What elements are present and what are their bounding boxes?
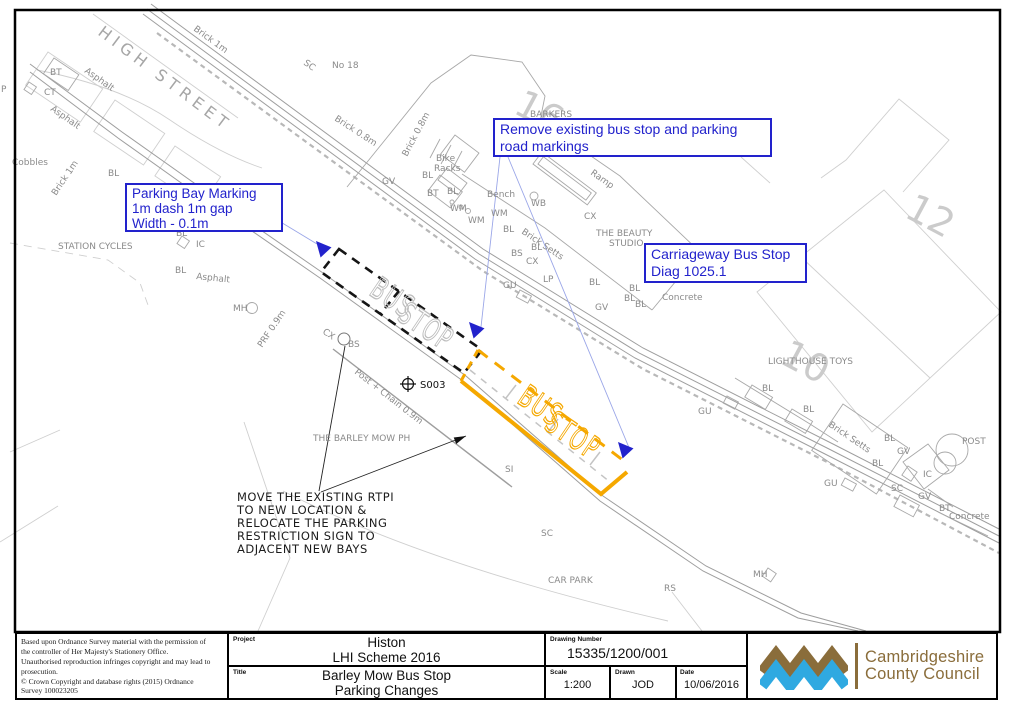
map-label: Bike [436, 154, 456, 164]
map-label: Concrete [949, 512, 990, 522]
map-label: No 18 [332, 61, 359, 71]
map-label: BL [589, 278, 600, 288]
map-label: Racks [434, 164, 461, 174]
logo-line2: County Council [865, 665, 980, 683]
map-label: MH [753, 570, 768, 580]
map-label: GU [824, 479, 838, 489]
map-label: S003 [420, 380, 445, 391]
note-leader-lines [319, 346, 466, 492]
map-label: RS [664, 584, 676, 594]
map-label: Brick Setts [826, 420, 872, 456]
road-kerb-lines [30, 4, 999, 631]
drawing-border [15, 10, 1000, 632]
map-label: SC [301, 58, 317, 73]
map-label: IC [923, 470, 932, 480]
ccc-logo: CambridgeshireCounty Council [748, 634, 996, 698]
callout-leader-lines [279, 157, 630, 450]
drawing-number-value: 15335/1200/001 [567, 645, 668, 661]
logo-line1: Cambridgeshire [865, 648, 984, 666]
date-value: 10/06/2016 [677, 679, 746, 691]
map-label: SI [505, 465, 513, 475]
map-label: BL [803, 405, 814, 415]
map-label: BL [422, 171, 433, 181]
map-label: LIGHTHOUSE TOYS [768, 357, 853, 367]
title-value: Barley Mow Bus Stop Parking Changes [229, 669, 544, 698]
map-label: WM [491, 209, 508, 219]
map-label: Asphalt [82, 66, 116, 94]
map-label: GV [382, 177, 396, 187]
faint-survey-lines [0, 14, 1001, 631]
map-label: BL [108, 169, 119, 179]
drawn-label: Drawn [615, 669, 635, 676]
map-label: GU [503, 281, 517, 291]
scale-value: 1:200 [546, 679, 609, 691]
map-label: IC [196, 240, 205, 250]
map-label: STATION CYCLES [58, 242, 133, 252]
map-label: SC [891, 484, 903, 494]
map-label: Brick 0.8m [401, 111, 433, 159]
map-label: LP [543, 275, 554, 285]
scale-label: Scale [550, 669, 567, 676]
project-value: Histon LHI Scheme 2016 [229, 636, 544, 665]
logo-text: CambridgeshireCounty Council [865, 649, 984, 684]
map-label: Post + Chain 0.9m [352, 367, 424, 426]
map-label: WM [468, 216, 485, 226]
map-label: BS [348, 340, 360, 350]
map-label: CX [526, 257, 538, 267]
map-label: BT [427, 189, 439, 199]
logo-zigzag-icon [760, 642, 848, 690]
map-label: CX [584, 212, 596, 222]
map-label: STUDIO [609, 239, 643, 249]
map-label: GV [918, 492, 932, 502]
drawn-value: JOD [611, 679, 675, 691]
map-label: BL [531, 243, 542, 253]
map-label: 12 [899, 185, 962, 247]
map-label: BS [511, 249, 523, 259]
map-label: Asphalt [48, 104, 82, 132]
map-label: Ramp [588, 168, 615, 191]
logo-divider [855, 643, 858, 689]
map-label: Brick 1m [191, 24, 229, 56]
map-label: CX [320, 327, 336, 342]
note-leader-arrowhead [454, 433, 468, 444]
map-label: Asphalt [196, 272, 231, 286]
title-block-divider [227, 665, 748, 667]
map-label: Brick 0.8m [332, 114, 378, 149]
date-label: Date [680, 669, 694, 676]
map-label: WM [450, 204, 467, 214]
map-label: Brick 1m [50, 159, 81, 198]
survey-station-s003 [400, 376, 416, 392]
map-label: P [1, 85, 7, 95]
callout-carriageway-bus-stop: Carriageway Bus Stop Diag 1025.1 [644, 243, 807, 283]
site-plan-svg: HIGH STREETBrick 1mSCNo 18Brick 0.8mBric… [0, 0, 1021, 717]
map-label: BL [447, 187, 458, 197]
map-label: CAR PARK [548, 576, 594, 586]
map-label: GV [595, 303, 609, 313]
map-label: CT [44, 88, 56, 98]
map-label: BL [635, 300, 646, 310]
map-label: BL [629, 284, 640, 294]
map-label: BT [50, 68, 62, 78]
map-label: BL [762, 384, 773, 394]
map-label: BL [624, 294, 635, 304]
map-label: Concrete [662, 293, 703, 303]
map-label: BL [175, 266, 186, 276]
map-label: MH [233, 304, 248, 314]
map-label: THE BEAUTY [595, 229, 653, 239]
map-label: Bench [487, 190, 515, 200]
copyright-notice: Based upon Ordnance Survey material with… [21, 637, 221, 696]
map-label: Cobbles [12, 158, 48, 168]
map-label: BL [872, 459, 883, 469]
map-label: BL [884, 434, 895, 444]
title-block: Based upon Ordnance Survey material with… [15, 632, 998, 700]
map-label: WB [531, 199, 546, 209]
map-label: SC [541, 529, 553, 539]
callout-remove-existing: Remove existing bus stop and parking roa… [493, 118, 772, 157]
rtpi-relocation-note: MOVE THE EXISTING RTPI TO NEW LOCATION &… [237, 491, 427, 556]
map-label: GV [897, 447, 911, 457]
map-label: THE BARLEY MOW PH [312, 434, 410, 444]
callout-parking-bay-marking: Parking Bay Marking 1m dash 1m gap Width… [125, 183, 283, 232]
drawing-number-label: Drawing Number [550, 636, 602, 643]
map-label: GU [698, 407, 712, 417]
map-label: POST [962, 437, 986, 447]
map-label: BL [503, 225, 514, 235]
map-label: PRF 0.9m [256, 309, 288, 350]
